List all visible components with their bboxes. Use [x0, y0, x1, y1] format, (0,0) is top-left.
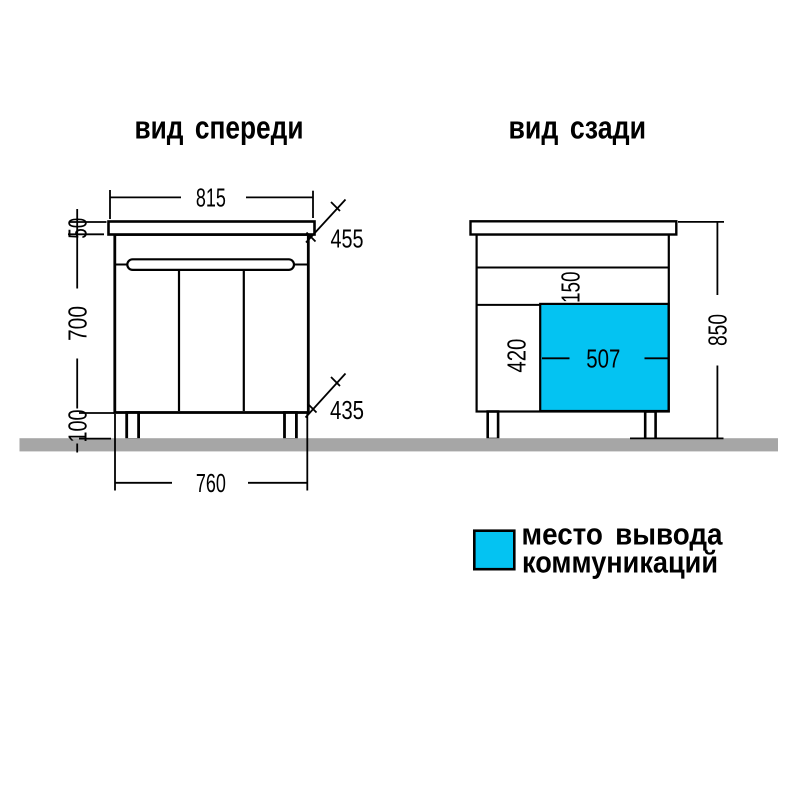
- svg-text:815: 815: [196, 183, 226, 213]
- svg-text:760: 760: [196, 468, 226, 498]
- svg-text:507: 507: [586, 344, 620, 374]
- svg-text:150: 150: [556, 272, 586, 304]
- svg-text:700: 700: [62, 306, 92, 341]
- svg-text:420: 420: [502, 339, 532, 373]
- svg-text:50: 50: [63, 218, 93, 239]
- svg-text:вид спереди: вид спереди: [135, 110, 304, 146]
- svg-text:вид сзади: вид сзади: [509, 110, 647, 146]
- svg-text:850: 850: [703, 314, 733, 346]
- svg-text:455: 455: [331, 223, 364, 253]
- svg-text:435: 435: [330, 395, 364, 425]
- svg-text:коммуникаций: коммуникаций: [522, 545, 718, 580]
- svg-text:100: 100: [62, 410, 92, 443]
